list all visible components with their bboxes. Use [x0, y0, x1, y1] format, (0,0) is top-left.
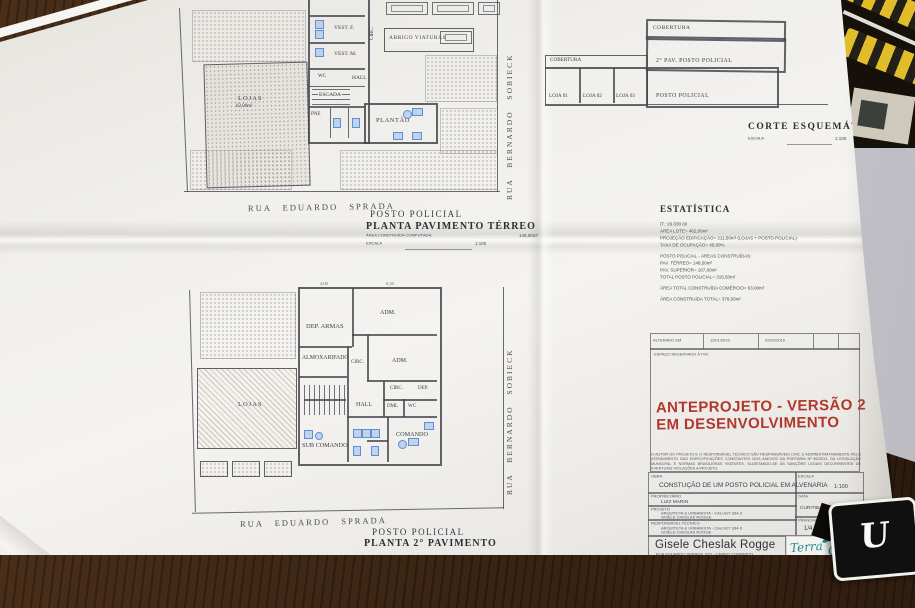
- desk-chair: [398, 440, 407, 449]
- corte-label-cobertura-left: COBERTURA: [550, 58, 581, 63]
- fold-crease: [0, 492, 96, 608]
- room-label-lojas: LOJAS: [238, 96, 263, 103]
- escala-label: ESCALA: [366, 241, 382, 246]
- list-item: PROJEÇÃO EDIFICAÇÃO= 211,50m² (LOJAS + P…: [660, 235, 854, 242]
- cabinet: [371, 429, 380, 438]
- desk-chair: [403, 110, 412, 119]
- wall: [613, 68, 615, 103]
- corte-escala-value: 1:100: [835, 136, 846, 141]
- room-label-vest-m: VEST. M.: [334, 52, 356, 58]
- ground-line: [545, 104, 828, 105]
- resp-line-2: GISELE CHESLAK ROGGE: [661, 530, 711, 535]
- street-label-vertical: RUA BERNARDO SOBIECK: [506, 348, 514, 495]
- plan-subtitle: PLANTA PAVIMENTO TÉRREO: [366, 222, 536, 232]
- reserved-note: ESPAÇO RESERVADO À P.M.: [654, 352, 709, 357]
- room-label-dep-armas: DEP. ARMAS: [306, 324, 344, 331]
- list-item: ÁREA CONSTRUÍDA TOTAL= 378,50m²: [660, 296, 854, 303]
- area-label: ÁREA CONSTRUÍDA COMPUTADA:: [366, 233, 432, 238]
- obra-label: OBRA: [651, 474, 662, 479]
- plan-subtitle-2: PLANTA 2° PAVIMENTO: [364, 539, 497, 549]
- room-label-almoxarifado: ALMOXARIFADO: [302, 356, 349, 362]
- wall: [367, 335, 369, 381]
- firm-address-1: RUA EDUARDO SPRADA, 870 - CAMPO COMPRIDO: [656, 552, 753, 557]
- bench: [393, 132, 403, 140]
- wall: [383, 399, 437, 401]
- disclaimer-text: O AUTOR DO PROJETO E O RESPONSÁVEL TÉCNI…: [651, 452, 861, 471]
- estatistica-lines: IT.: 26.030.00ÁREA LOTE= 462,00m²PROJEÇÃ…: [660, 221, 854, 303]
- street-label: RUA EDUARDO SPRADA: [240, 516, 387, 528]
- obra-cell: OBRA CONSTUÇÃO DE UM POSTO POLICIAL EM A…: [648, 472, 797, 494]
- room-label-dml: DML: [387, 404, 398, 409]
- wall: [299, 376, 347, 378]
- vehicle: [478, 2, 500, 15]
- dim-label: 4,00: [320, 282, 328, 287]
- corte-escala-label: ESCALA: [748, 136, 764, 141]
- toilet-fixture: [353, 446, 361, 456]
- status-line-2: EM DESENVOLVIMENTO: [656, 414, 866, 434]
- corte-label-posto: POSTO POLICIAL: [656, 94, 709, 100]
- room-label-abrigo: ABRIGO VIATURAS: [389, 36, 446, 42]
- planter: [264, 461, 292, 477]
- room-label-circ-center: CIRC.: [351, 360, 364, 365]
- desk: [412, 108, 423, 116]
- escala-line: ESCALA 1:100: [366, 241, 498, 251]
- firm-address-3: (41) 3274-0000 - ARQUITETURA E URBANISMO: [656, 560, 744, 565]
- sink-fixture: [315, 48, 324, 57]
- room-lojas-2: [197, 368, 297, 449]
- resp-label: RESPONSÁVEL TÉCNICO: [651, 521, 700, 526]
- room-label-pne: PNE: [311, 112, 320, 117]
- planter: [200, 461, 228, 477]
- room-label-escada: ESCADA: [318, 93, 342, 99]
- lot-boundary: [184, 191, 500, 192]
- data-label: DATA: [798, 494, 808, 499]
- cabinet: [353, 429, 362, 438]
- list-item: IT.: 26.030.00: [660, 221, 854, 228]
- street-label-vertical: RUA BERNARDO SOBIECK: [506, 53, 514, 200]
- dim-label: 6,30: [386, 282, 394, 287]
- wall: [309, 68, 365, 70]
- toilet-fixture: [333, 118, 341, 128]
- escala-cell: ESCALA 1:100: [795, 472, 864, 494]
- list-item: TAXA DE OCUPAÇÃO= 45,80%: [660, 242, 854, 249]
- room-label-hall: HALL: [352, 76, 367, 82]
- proprietario-label: PROPRIETÁRIO: [651, 494, 681, 499]
- wall: [309, 86, 365, 87]
- paved-area: [425, 55, 497, 102]
- plan-title-2: POSTO POLICIAL: [372, 528, 465, 537]
- vehicle: [386, 2, 428, 15]
- wall: [403, 399, 405, 417]
- cabinet: [362, 429, 371, 438]
- corte-escala-line: ESCALA 1:100: [748, 136, 858, 146]
- corte-label-loja1: LOJA 01: [549, 94, 568, 99]
- planter: [232, 461, 260, 477]
- wall: [367, 380, 437, 382]
- list-item: ÁREA TOTAL CONSTRUÍDA COMÉRCIO= 63,00m²: [660, 285, 854, 292]
- room-label-sub-comando: SUB COMANDO: [302, 443, 348, 449]
- room-label-hall-2: HALL: [356, 402, 372, 408]
- plan-title: POSTO POLICIAL: [370, 210, 463, 219]
- wall: [347, 416, 437, 418]
- room-lojas: [203, 62, 310, 189]
- wall: [348, 108, 349, 138]
- wall: [309, 42, 365, 44]
- vehicle: [432, 2, 474, 15]
- logo-word-terra: Terra: [790, 539, 824, 555]
- room-label-dep: DEP.: [418, 386, 428, 391]
- list-item: PAV. TÉRREO= 148,50m²: [660, 260, 854, 267]
- room-label-plantao: PLANTÃO: [376, 118, 410, 125]
- lot-boundary: [192, 507, 504, 513]
- room-label-wc-2: WC: [408, 404, 416, 409]
- vehicle: [440, 31, 472, 44]
- lot-boundary: [189, 290, 196, 512]
- corte-label-cobertura-top: COBERTURA: [653, 26, 690, 32]
- lot-boundary: [503, 287, 504, 509]
- corte-lojas-box: [545, 67, 648, 106]
- proprietario-value: LUIZ MARIN: [661, 499, 688, 504]
- stair-rail: [304, 399, 346, 401]
- firm-address-2: 81.230-190 - CURITIBA / PR: [656, 556, 707, 561]
- photo-of-architectural-sheet: { "terreo": { "title1": "POSTO POLICIAL"…: [0, 0, 915, 555]
- escala-value: 1:100: [475, 241, 486, 246]
- estatistica-title: ESTATÍSTICA: [660, 205, 730, 214]
- drawing-sheet: LOJAS 63,00m² VEST. F. VEST. M. WC HALL …: [0, 0, 915, 555]
- wall: [579, 68, 581, 103]
- toilet-fixture: [352, 118, 360, 128]
- area-value: 148,50m²: [519, 233, 538, 238]
- room-label-circ: CIRC.: [370, 27, 375, 40]
- wall: [299, 346, 352, 348]
- desk: [408, 438, 419, 446]
- paved-area: [440, 108, 498, 154]
- wall: [347, 417, 349, 462]
- sink-fixture: [315, 30, 324, 39]
- escala-label: ESCALA: [798, 474, 814, 479]
- firm-cell: Gisele Cheslak Rogge RUA EDUARDO SPRADA,…: [648, 535, 787, 557]
- firm-name: Gisele Cheslak Rogge: [655, 539, 775, 551]
- corte-posto-box: [646, 67, 779, 108]
- desk: [304, 430, 313, 439]
- wall: [309, 106, 365, 108]
- room-label-vest-f: VEST. F.: [334, 26, 354, 32]
- bench: [412, 132, 422, 140]
- paved-area: [340, 150, 498, 190]
- room-label-circ-right: CIRC.: [390, 386, 403, 391]
- wall: [309, 15, 365, 17]
- toilet-fixture: [371, 446, 379, 456]
- list-item: ÁREA LOTE= 462,00m²: [660, 228, 854, 235]
- terrace-area: [200, 292, 296, 359]
- escala-value: 1:100: [834, 484, 848, 490]
- wall: [367, 440, 388, 442]
- room-label-wc: WC: [318, 74, 326, 79]
- list-item: PAV. SUPERIOR= 167,00m²: [660, 267, 854, 274]
- revision-date-1: 11/01/2016: [710, 338, 730, 343]
- corte-label-loja3: LOJA 03: [616, 94, 635, 99]
- corte-label-loja2: LOJA 02: [583, 94, 602, 99]
- status-banner: ANTEPROJETO - VERSÃO 2 EM DESENVOLVIMENT…: [656, 397, 867, 434]
- wall: [330, 108, 331, 138]
- photo-gray-square: [847, 87, 915, 144]
- paved-area: [192, 10, 306, 62]
- room-area-lojas: 63,00m²: [236, 104, 253, 109]
- room-label-adm-right: ADM.: [392, 358, 408, 364]
- uno-card: U: [828, 496, 915, 581]
- wall: [352, 288, 354, 347]
- room-label-lojas-2: LOJAS: [238, 402, 263, 409]
- wall: [352, 334, 437, 336]
- revision-altered-label: ALTERADO EM: [653, 338, 681, 343]
- desk-chair: [315, 432, 323, 440]
- room-label-adm-top: ADM.: [380, 310, 396, 316]
- list-item: POSTO POLICIAL - ÁREAS CONSTRUÍDAS:: [660, 253, 854, 260]
- corte-label-pav2: 2° PAV. POSTO POLICIAL: [656, 59, 732, 65]
- list-item: TOTAL POSTO POLICIAL= 315,50m²: [660, 274, 854, 281]
- uno-card-letter: U: [860, 515, 890, 558]
- revision-date-2: 02/02/2016: [765, 338, 785, 343]
- lot-boundary: [179, 8, 188, 192]
- sink-fixture: [315, 20, 324, 29]
- prancha-value: 1/4: [804, 526, 812, 532]
- cabinet: [424, 422, 434, 430]
